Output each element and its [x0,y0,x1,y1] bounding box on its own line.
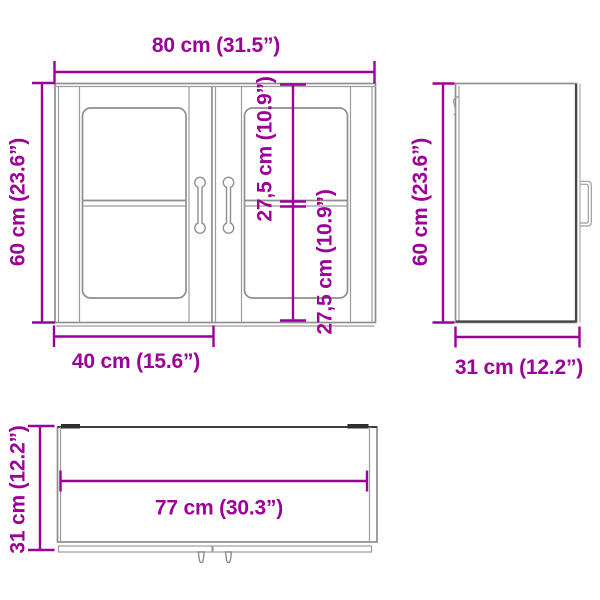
top-right-handle [226,552,232,563]
dimension-diagram: 80 cm (31.5”) 60 cm (23.6”) 40 cm (15.6”… [0,0,600,600]
top-left-handle [198,552,204,563]
front-height-dimension-line [32,83,55,323]
side-view: 60 cm (23.6”) 31 cm (12.2”) [409,84,591,380]
glass-section-dimension-line [280,85,306,321]
door-width-label: 40 cm (15.6”) [72,350,200,373]
front-width-label: 80 cm (31.5”) [152,34,280,57]
wall-mount-block-right [348,424,369,429]
top-right-door-strip [213,546,372,552]
side-handle-inner [580,184,588,223]
right-door-handle [223,177,233,233]
glass-upper-label: 27,5 cm (10.9”) [254,76,277,221]
left-door-glass-panel [83,108,187,298]
front-view: 80 cm (31.5”) 60 cm (23.6”) 40 cm (15.6”… [7,34,376,373]
side-height-label: 60 cm (23.6”) [409,138,432,266]
wall-mount-block-left [61,424,80,429]
top-cabinet-outline [58,427,378,542]
top-depth-label: 31 cm (12.2”) [7,425,30,553]
diagram-canvas: 80 cm (31.5”) 60 cm (23.6”) 40 cm (15.6”… [0,0,600,600]
front-height-label: 60 cm (23.6”) [7,138,30,266]
side-handle-outer [580,181,591,226]
front-width-dimension-line [55,61,375,84]
door-width-dimension-line [54,326,214,348]
left-door-handle [195,177,205,233]
inner-width-label: 77 cm (30.3”) [155,497,283,520]
side-cabinet-outline [456,84,577,323]
side-height-dimension-line [433,84,455,323]
top-view: 77 cm (30.3”) 31 cm (12.2”) [7,424,378,563]
inner-width-dimension-line [61,471,368,492]
side-depth-label: 31 cm (12.2”) [455,356,583,379]
top-depth-dimension-line [28,426,55,550]
top-left-door-strip [59,546,213,552]
side-depth-dimension-line [456,327,580,348]
glass-lower-label: 27,5 cm (10.9”) [314,189,337,334]
